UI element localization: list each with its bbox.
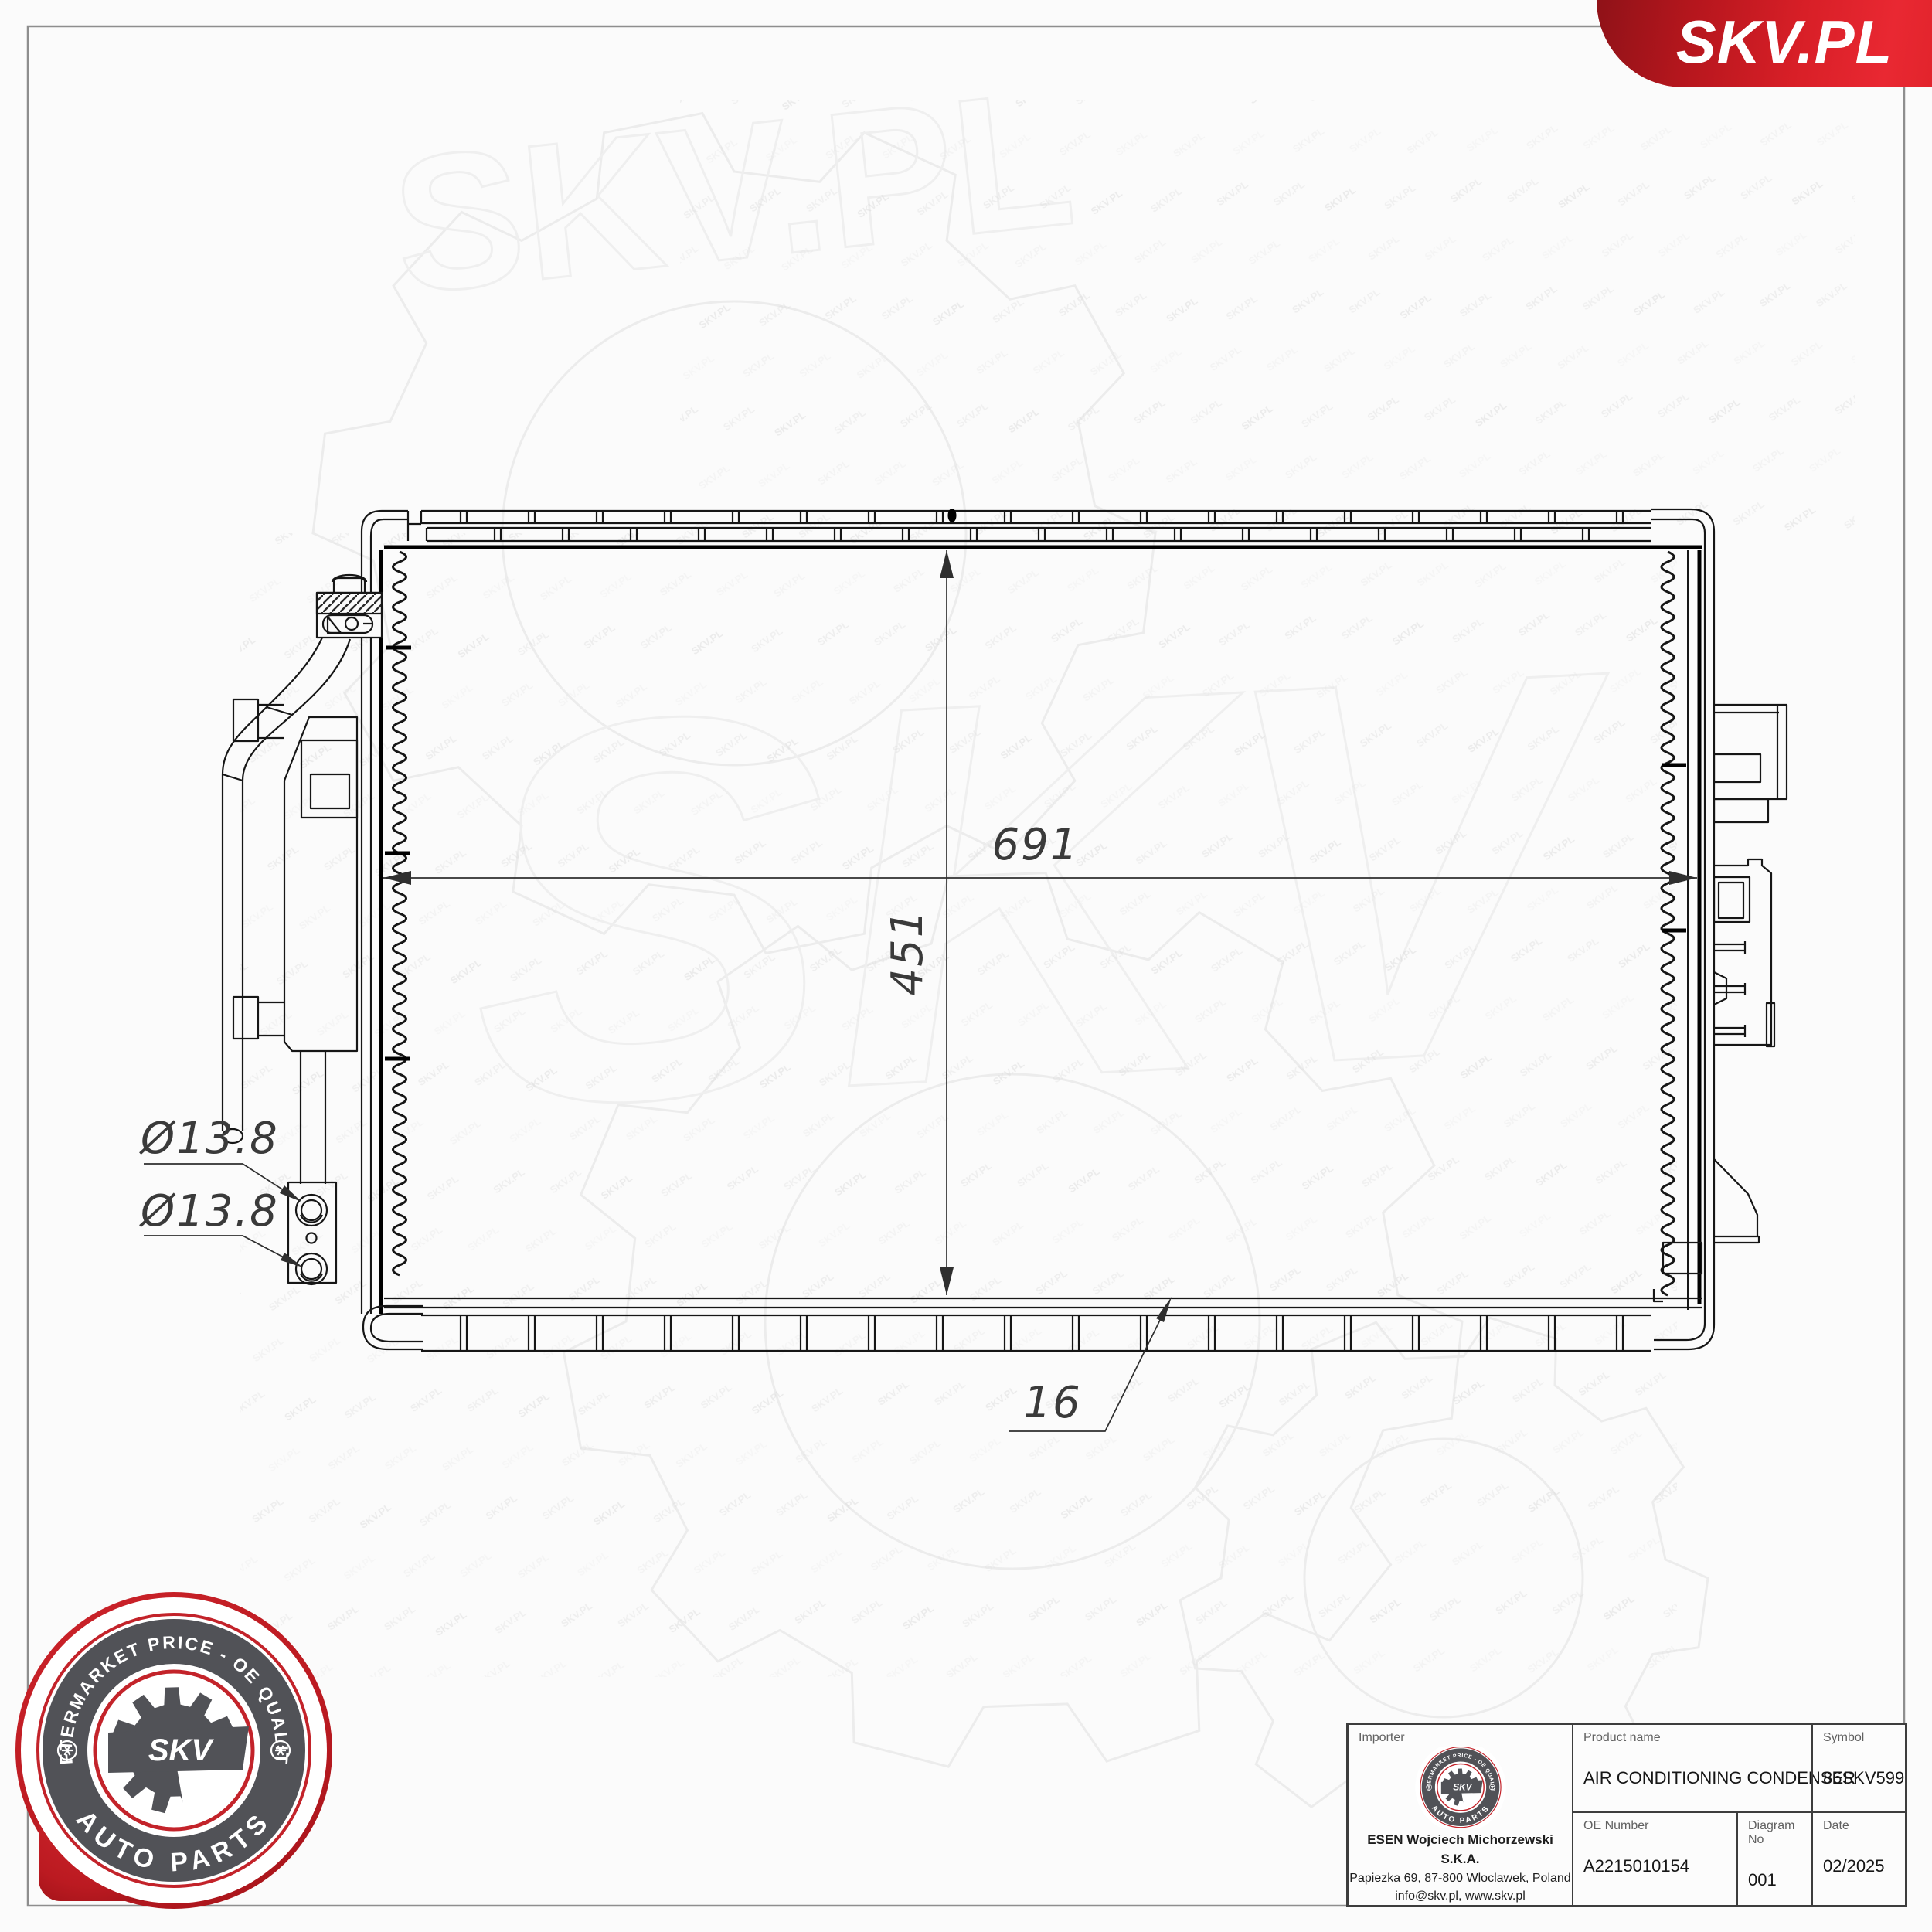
brand-banner: SKV.PL: [1597, 0, 1932, 87]
reference-dot: [948, 509, 957, 522]
title-block-oe-cell: OE Number A2215010154: [1572, 1811, 1736, 1905]
arrow-right-icon: [1669, 871, 1697, 885]
date-label: Date: [1823, 1819, 1905, 1833]
importer-company: ESEN Wojciech Michorzewski S.K.A.: [1349, 1831, 1572, 1869]
importer-contact: info@skv.pl, www.skv.pl: [1395, 1887, 1526, 1905]
product-name-value: AIR CONDITIONING CONDENSER: [1583, 1768, 1811, 1788]
date-value: 02/2025: [1823, 1856, 1905, 1876]
title-block-diagram-cell: Diagram No 001: [1736, 1811, 1811, 1905]
title-block: Importer ESEN Wojciech Michorzewski S.K.…: [1346, 1723, 1907, 1907]
product-name-label: Product name: [1583, 1731, 1811, 1745]
importer-address: Papiezka 69, 87-800 Wloclawek, Poland: [1349, 1869, 1570, 1887]
symbol-label: Symbol: [1823, 1731, 1905, 1745]
watermark: SKV.PL SKV: [240, 49, 1855, 1841]
dimension-thickness-label: 16: [1023, 1378, 1081, 1428]
skv-logo-small: [1408, 1747, 1513, 1828]
oe-number-value: A2215010154: [1583, 1856, 1736, 1876]
page: SKV.PL SKV.PL SKV.PL SKV.PL SKV.PL SKV.P…: [0, 0, 1932, 1932]
title-block-product-cell: Product name AIR CONDITIONING CONDENSER: [1572, 1725, 1811, 1811]
symbol-value: 86SKV599: [1823, 1768, 1905, 1788]
dimension-height-label: 451: [883, 909, 933, 996]
dimension-width-label: 691: [992, 820, 1080, 870]
port-top-label: Ø13.8: [139, 1114, 279, 1164]
technical-drawing-scene: SKV.PL SKV.PL SKV.PL SKV.PL SKV.PL SKV.P…: [0, 0, 1932, 1932]
title-block-symbol-cell: Symbol 86SKV599: [1811, 1725, 1905, 1811]
oe-number-label: OE Number: [1583, 1819, 1736, 1833]
brand-logo-text: SKV.PL: [1597, 0, 1932, 87]
diagram-no-value: 001: [1748, 1870, 1811, 1890]
right-brackets: [1714, 705, 1787, 1243]
port-bottom-label: Ø13.8: [139, 1186, 279, 1236]
importer-label: Importer: [1349, 1731, 1405, 1745]
title-block-date-cell: Date 02/2025: [1811, 1811, 1905, 1905]
diagram-no-label: Diagram No: [1748, 1819, 1811, 1847]
title-block-importer-cell: Importer ESEN Wojciech Michorzewski S.K.…: [1349, 1725, 1572, 1905]
